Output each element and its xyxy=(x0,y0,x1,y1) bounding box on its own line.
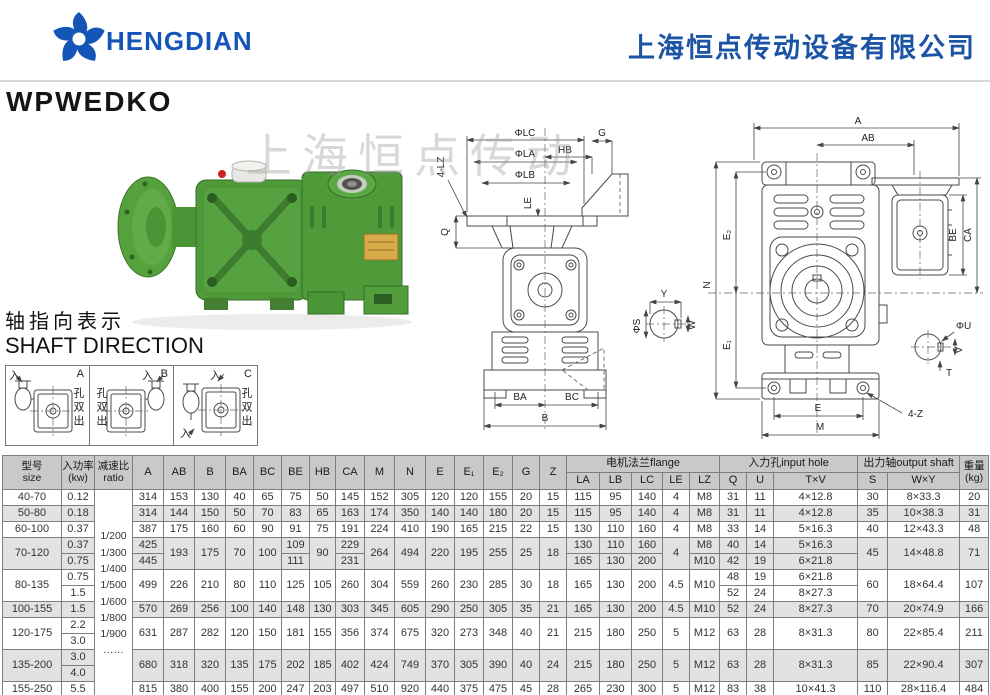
table-cell: 4 xyxy=(663,538,690,570)
table-row: 70-1200.37425193175701001099022926449422… xyxy=(3,538,989,554)
table-cell: 180 xyxy=(600,650,632,682)
dim-label: BA xyxy=(513,392,527,403)
table-cell: M8 xyxy=(690,538,720,554)
table-cell: 174 xyxy=(365,506,395,522)
dim-label: ΦLC xyxy=(515,128,536,139)
table-cell: 100 xyxy=(254,538,282,570)
shaft-direction-title-en: SHAFT DIRECTION xyxy=(5,334,204,358)
table-cell: 120 xyxy=(426,490,455,506)
table-cell: 153 xyxy=(164,490,195,506)
table-cell: 256 xyxy=(195,602,226,618)
size-cell: 155-250 xyxy=(3,682,62,695)
col-header-dim: G xyxy=(513,456,540,490)
table-cell: 175 xyxy=(195,538,226,570)
input-label: 入 xyxy=(142,367,153,383)
table-cell: 6×21.8 xyxy=(774,570,858,586)
table-cell: 19 xyxy=(747,554,774,570)
col-header-sub: U xyxy=(747,473,774,490)
shaft-direction-variant-b: B 入 孔双出 xyxy=(89,365,174,446)
table-cell: 320 xyxy=(426,618,455,650)
size-cell: 40-70 xyxy=(3,490,62,506)
table-cell: M12 xyxy=(690,618,720,650)
table-cell: 5.5 xyxy=(62,682,95,695)
table-cell: 52 xyxy=(720,586,747,602)
col-header-dim: E₁ xyxy=(455,456,484,490)
table-cell: 63 xyxy=(720,650,747,682)
size-cell: 60-100 xyxy=(3,522,62,538)
dim-label: A xyxy=(855,116,862,127)
col-header-dim: M xyxy=(365,456,395,490)
dim-label: E₁ xyxy=(722,339,733,350)
table-cell: 85 xyxy=(858,650,888,682)
table-cell: 375 xyxy=(455,682,484,695)
table-cell: 380 xyxy=(164,682,195,695)
table-cell: M10 xyxy=(690,554,720,570)
table-cell: 42 xyxy=(720,554,747,570)
table-cell: 18 xyxy=(540,570,567,602)
table-cell: 815 xyxy=(133,682,164,695)
table-cell: 140 xyxy=(455,506,484,522)
table-cell: 226 xyxy=(164,570,195,602)
table-cell: 15 xyxy=(540,522,567,538)
table-cell: 305 xyxy=(455,650,484,682)
col-header-sub: W×Y xyxy=(888,473,960,490)
table-cell: 140 xyxy=(632,490,663,506)
table-cell: 348 xyxy=(484,618,513,650)
table-cell: 215 xyxy=(484,522,513,538)
table-cell: 494 xyxy=(395,538,426,570)
table-cell: 4.0 xyxy=(62,666,95,682)
table-cell: 95 xyxy=(600,506,632,522)
table-cell: 305 xyxy=(395,490,426,506)
dim-label: ΦLA xyxy=(515,149,536,160)
table-cell: 215 xyxy=(567,650,600,682)
dim-label: 4-Z xyxy=(908,409,923,420)
dim-label: T xyxy=(946,368,952,379)
side-view-drawing: A AB N E₂ E₁ BE CA E M 4-Z ΦU xyxy=(700,105,988,465)
table-cell: 75 xyxy=(282,490,310,506)
table-cell: 28 xyxy=(747,618,774,650)
dim-label: CA xyxy=(963,228,974,242)
table-cell: 410 xyxy=(395,522,426,538)
table-cell: 100 xyxy=(226,602,254,618)
table-cell: 282 xyxy=(195,618,226,650)
input-label: 入 xyxy=(180,425,191,441)
table-row: 50-800.183141441505070836516317435014014… xyxy=(3,506,989,522)
table-cell: 60 xyxy=(858,570,888,602)
table-cell: 20 xyxy=(960,490,989,506)
table-cell: 250 xyxy=(632,618,663,650)
size-cell: 50-80 xyxy=(3,506,62,522)
table-cell: M10 xyxy=(690,570,720,602)
shaft-direction-diagrams: A 入 孔双出 B 入 孔双出 xyxy=(5,365,257,446)
table-cell: 111 xyxy=(282,554,310,570)
shaft-direction-variant-a: A 入 孔双出 xyxy=(5,365,90,446)
table-cell: 175 xyxy=(164,522,195,538)
shaft-direction-title-zh: 轴指向表示 xyxy=(5,312,204,334)
table-cell: 287 xyxy=(164,618,195,650)
table-cell: 31 xyxy=(960,506,989,522)
table-cell: 70 xyxy=(254,506,282,522)
table-cell: 4 xyxy=(663,522,690,538)
table-cell: 400 xyxy=(195,682,226,695)
product-photo xyxy=(112,122,412,334)
table-cell: 130 xyxy=(195,490,226,506)
table-cell: 224 xyxy=(365,522,395,538)
table-cell: 105 xyxy=(310,570,336,602)
table-cell: 559 xyxy=(395,570,426,602)
table-cell: 269 xyxy=(164,602,195,618)
table-cell: 28 xyxy=(747,650,774,682)
col-header-dim: BE xyxy=(282,456,310,490)
table-cell: 180 xyxy=(484,506,513,522)
size-cell: 70-120 xyxy=(3,538,62,570)
table-cell: 370 xyxy=(426,650,455,682)
table-cell: 14×48.8 xyxy=(888,538,960,570)
col-header-dim: A xyxy=(133,456,164,490)
table-cell: 75 xyxy=(310,522,336,538)
dim-label: AB xyxy=(861,133,875,144)
table-cell: 200 xyxy=(254,682,282,695)
table-cell: 10×41.3 xyxy=(774,682,858,695)
table-cell: 255 xyxy=(484,538,513,570)
table-cell: 230 xyxy=(455,570,484,602)
table-cell: 202 xyxy=(282,650,310,682)
group-header-output-shaft: 出力轴output shaft xyxy=(858,456,960,473)
shaft-direction-title: 轴指向表示 SHAFT DIRECTION xyxy=(5,312,204,357)
table-cell: M12 xyxy=(690,682,720,695)
table-cell: 18 xyxy=(540,538,567,570)
table-cell: 152 xyxy=(365,490,395,506)
table-cell: 11 xyxy=(747,506,774,522)
table-cell: 83 xyxy=(720,682,747,695)
table-cell: 497 xyxy=(336,682,365,695)
table-cell: 200 xyxy=(632,570,663,602)
table-cell: M8 xyxy=(690,522,720,538)
table-cell: 273 xyxy=(455,618,484,650)
col-header-dim: E₂ xyxy=(484,456,513,490)
table-cell: 35 xyxy=(513,602,540,618)
table-cell: 140 xyxy=(632,506,663,522)
col-header-dim: BA xyxy=(226,456,254,490)
table-cell: 356 xyxy=(336,618,365,650)
table-cell: 21 xyxy=(540,618,567,650)
table-cell: 45 xyxy=(513,682,540,695)
output-label: 孔双出 xyxy=(70,387,86,429)
col-header-dim: E xyxy=(426,456,455,490)
table-cell: 290 xyxy=(426,602,455,618)
table-cell: 181 xyxy=(282,618,310,650)
table-cell: 190 xyxy=(426,522,455,538)
table-cell: 570 xyxy=(133,602,164,618)
table-cell: 0.12 xyxy=(62,490,95,506)
table-cell: 65 xyxy=(310,506,336,522)
input-label: 入 xyxy=(210,367,221,383)
table-cell: 31 xyxy=(720,506,747,522)
table-cell: 605 xyxy=(395,602,426,618)
table-cell: 130 xyxy=(567,538,600,554)
table-cell: 15 xyxy=(540,490,567,506)
col-header-weight: 重量 (kg) xyxy=(960,456,989,490)
output-label: 孔双出 xyxy=(93,387,109,429)
table-cell: 155 xyxy=(226,682,254,695)
table-cell: 0.37 xyxy=(62,522,95,538)
table-cell: 31 xyxy=(720,490,747,506)
dim-label: N xyxy=(702,281,713,288)
col-header-dim: HB xyxy=(310,456,336,490)
ratio-cell: 1/200 1/300 1/400 1/500 1/600 1/800 1/90… xyxy=(95,490,133,695)
table-cell: 220 xyxy=(426,538,455,570)
table-cell: 8×27.3 xyxy=(774,586,858,602)
col-header-dim: Z xyxy=(540,456,567,490)
table-cell: 0.37 xyxy=(62,538,95,554)
table-cell: 229 xyxy=(336,538,365,554)
table-cell: 155 xyxy=(484,490,513,506)
table-cell: 130 xyxy=(600,570,632,602)
table-cell: 424 xyxy=(365,650,395,682)
table-cell: 150 xyxy=(254,618,282,650)
table-cell: 160 xyxy=(632,522,663,538)
table-row: 100-1551.5570269256100140148130303345605… xyxy=(3,602,989,618)
table-row: 120-1752.2631287282120150181155356374675… xyxy=(3,618,989,634)
table-cell: 8×31.3 xyxy=(774,650,858,682)
table-cell: 175 xyxy=(254,650,282,682)
dim-label: BC xyxy=(565,392,579,403)
table-cell: 52 xyxy=(720,602,747,618)
dim-label: B xyxy=(542,413,549,424)
table-cell: 303 xyxy=(336,602,365,618)
table-cell: 22 xyxy=(513,522,540,538)
name-plate xyxy=(364,234,398,260)
table-row: 60-1000.37387175160609091751912244101901… xyxy=(3,522,989,538)
table-cell: 80 xyxy=(226,570,254,602)
table-cell: 264 xyxy=(365,538,395,570)
table-cell: 314 xyxy=(133,490,164,506)
table-cell: 307 xyxy=(960,650,989,682)
table-cell: 24 xyxy=(540,650,567,682)
table-cell: 150 xyxy=(195,506,226,522)
table-cell: 135 xyxy=(226,650,254,682)
table-cell: 18×64.4 xyxy=(888,570,960,602)
table-cell: 125 xyxy=(282,570,310,602)
group-header-input-hole: 入力孔input hole xyxy=(720,456,858,473)
table-cell: 185 xyxy=(310,650,336,682)
table-cell: 115 xyxy=(567,490,600,506)
table-cell: 95 xyxy=(600,490,632,506)
table-cell: 120 xyxy=(226,618,254,650)
table-cell: 107 xyxy=(960,570,989,602)
table-cell: 165 xyxy=(455,522,484,538)
group-header-flange: 电机法兰flange xyxy=(567,456,720,473)
table-cell: 247 xyxy=(282,682,310,695)
table-cell: 130 xyxy=(600,554,632,570)
table-cell: 4×12.8 xyxy=(774,490,858,506)
col-header-sub: T×V xyxy=(774,473,858,490)
table-cell: 110 xyxy=(600,538,632,554)
table-cell: 318 xyxy=(164,650,195,682)
size-cell: 120-175 xyxy=(3,618,62,650)
col-header-dim: CA xyxy=(336,456,365,490)
table-cell: 499 xyxy=(133,570,164,602)
table-cell: 215 xyxy=(567,618,600,650)
table-cell: M8 xyxy=(690,506,720,522)
red-dot xyxy=(218,170,226,178)
table-cell: 30 xyxy=(513,570,540,602)
col-header-dim: BC xyxy=(254,456,282,490)
table-cell: 304 xyxy=(365,570,395,602)
table-cell: 115 xyxy=(567,506,600,522)
table-cell: 20 xyxy=(513,506,540,522)
front-view-drawing: ΦLC ΦLA ΦLB 4-LZ HB G LE Q BA BC B Y xyxy=(432,112,707,457)
table-cell: 0.75 xyxy=(62,570,95,586)
size-cell: 100-155 xyxy=(3,602,62,618)
output-label: 孔双出 xyxy=(238,387,254,429)
table-cell: 285 xyxy=(484,570,513,602)
table-cell: 91 xyxy=(282,522,310,538)
table-cell: 38 xyxy=(747,682,774,695)
table-cell: 110 xyxy=(858,682,888,695)
dim-label: Q xyxy=(440,228,451,236)
table-cell: 920 xyxy=(395,682,426,695)
table-cell: 21 xyxy=(540,602,567,618)
table-cell: M12 xyxy=(690,650,720,682)
dim-label: 4-LZ xyxy=(436,157,447,178)
dim-label: Y xyxy=(661,289,668,300)
company-name: 上海恒点传动设备有限公司 xyxy=(628,26,976,65)
table-cell: 40 xyxy=(513,650,540,682)
table-cell: 510 xyxy=(365,682,395,695)
table-cell: 155 xyxy=(310,618,336,650)
dim-label: ΦS xyxy=(632,318,643,333)
table-cell: 130 xyxy=(310,602,336,618)
col-header-sub: LE xyxy=(663,473,690,490)
table-row: 155-2505.5815380400155200247203497510920… xyxy=(3,682,989,695)
table-cell: 33 xyxy=(720,522,747,538)
table-cell: 65 xyxy=(254,490,282,506)
table-cell: 200 xyxy=(632,602,663,618)
table-cell: 1.5 xyxy=(62,602,95,618)
table-cell: 345 xyxy=(365,602,395,618)
table-cell: 50 xyxy=(310,490,336,506)
table-cell: 210 xyxy=(195,570,226,602)
dim-label: LE xyxy=(523,197,534,210)
col-header-sub: LC xyxy=(632,473,663,490)
table-row: 135-2003.0680318320135175202185402424749… xyxy=(3,650,989,666)
col-header-sub: LB xyxy=(600,473,632,490)
table-cell: 387 xyxy=(133,522,164,538)
dim-label: HB xyxy=(558,145,572,156)
table-cell: 425 xyxy=(133,538,164,554)
catalog-page: HENGDIAN 上海恒点传动设备有限公司 WPWEDKO 上海恒点传动 xyxy=(0,0,990,695)
col-header-size: 型号 size xyxy=(3,456,62,490)
table-cell: 4 xyxy=(663,490,690,506)
table-cell: 40 xyxy=(858,522,888,538)
table-cell: 12×43.3 xyxy=(888,522,960,538)
header-bar: HENGDIAN 上海恒点传动设备有限公司 xyxy=(0,0,990,82)
table-cell: 165 xyxy=(567,570,600,602)
table-cell: M8 xyxy=(690,490,720,506)
col-header-dim: B xyxy=(195,456,226,490)
table-cell: 230 xyxy=(600,682,632,695)
brand-logo-icon xyxy=(52,10,106,68)
table-cell: 8×27.3 xyxy=(774,602,858,618)
table-cell: 320 xyxy=(195,650,226,682)
table-row: 80-1350.75499226210801101251052603045592… xyxy=(3,570,989,586)
table-cell: 749 xyxy=(395,650,426,682)
table-cell: 193 xyxy=(164,538,195,570)
size-cell: 80-135 xyxy=(3,570,62,602)
table-cell: 260 xyxy=(426,570,455,602)
table-cell: 5 xyxy=(663,618,690,650)
table-cell: 22×90.4 xyxy=(888,650,960,682)
table-cell: 191 xyxy=(336,522,365,538)
table-cell: 1.5 xyxy=(62,586,95,602)
table-cell: 20 xyxy=(513,490,540,506)
table-cell: 680 xyxy=(133,650,164,682)
table-cell: 3.0 xyxy=(62,650,95,666)
table-cell: 0.75 xyxy=(62,554,95,570)
table-cell: 140 xyxy=(254,602,282,618)
table-cell: 675 xyxy=(395,618,426,650)
table-cell: 148 xyxy=(282,602,310,618)
size-cell: 135-200 xyxy=(3,650,62,682)
table-cell: 5 xyxy=(663,650,690,682)
table-cell: 28×116.4 xyxy=(888,682,960,695)
table-cell: 60 xyxy=(226,522,254,538)
dim-label: G xyxy=(598,128,606,139)
table-cell: 24 xyxy=(747,586,774,602)
table-cell: 180 xyxy=(600,618,632,650)
variant-label: B xyxy=(161,368,168,380)
table-cell: 24 xyxy=(747,602,774,618)
table-cell: 110 xyxy=(600,522,632,538)
col-header-dim: AB xyxy=(164,456,195,490)
table-cell: 314 xyxy=(133,506,164,522)
table-cell: 40 xyxy=(720,538,747,554)
table-cell: 48 xyxy=(960,522,989,538)
table-cell: 445 xyxy=(133,554,164,570)
output-shaft-detail: ΦU V T xyxy=(911,321,971,379)
table-cell: 10×38.3 xyxy=(888,506,960,522)
col-header-power: 入功率 (kw) xyxy=(62,456,95,490)
table-cell: 374 xyxy=(365,618,395,650)
col-header-sub: Q xyxy=(720,473,747,490)
table-cell: 4.5 xyxy=(663,570,690,602)
table-cell: 145 xyxy=(336,490,365,506)
table-cell: 25 xyxy=(513,538,540,570)
input-label: 入 xyxy=(9,367,20,383)
table-cell: 90 xyxy=(254,522,282,538)
table-cell: 166 xyxy=(960,602,989,618)
table-cell: 0.18 xyxy=(62,506,95,522)
table-cell: 5×16.3 xyxy=(774,538,858,554)
dim-label: E xyxy=(815,403,822,414)
table-cell: 120 xyxy=(455,490,484,506)
dim-label: E₂ xyxy=(722,230,733,241)
table-cell: 260 xyxy=(336,570,365,602)
table-cell: 4 xyxy=(663,506,690,522)
table-cell: 22×85.4 xyxy=(888,618,960,650)
table-cell: 160 xyxy=(195,522,226,538)
table-cell: 28 xyxy=(540,682,567,695)
table-cell: 390 xyxy=(484,650,513,682)
table-cell: 402 xyxy=(336,650,365,682)
table-cell: 631 xyxy=(133,618,164,650)
table-cell: M10 xyxy=(690,602,720,618)
table-cell: 20×74.9 xyxy=(888,602,960,618)
table-cell: 5×16.3 xyxy=(774,522,858,538)
table-cell: 165 xyxy=(567,602,600,618)
